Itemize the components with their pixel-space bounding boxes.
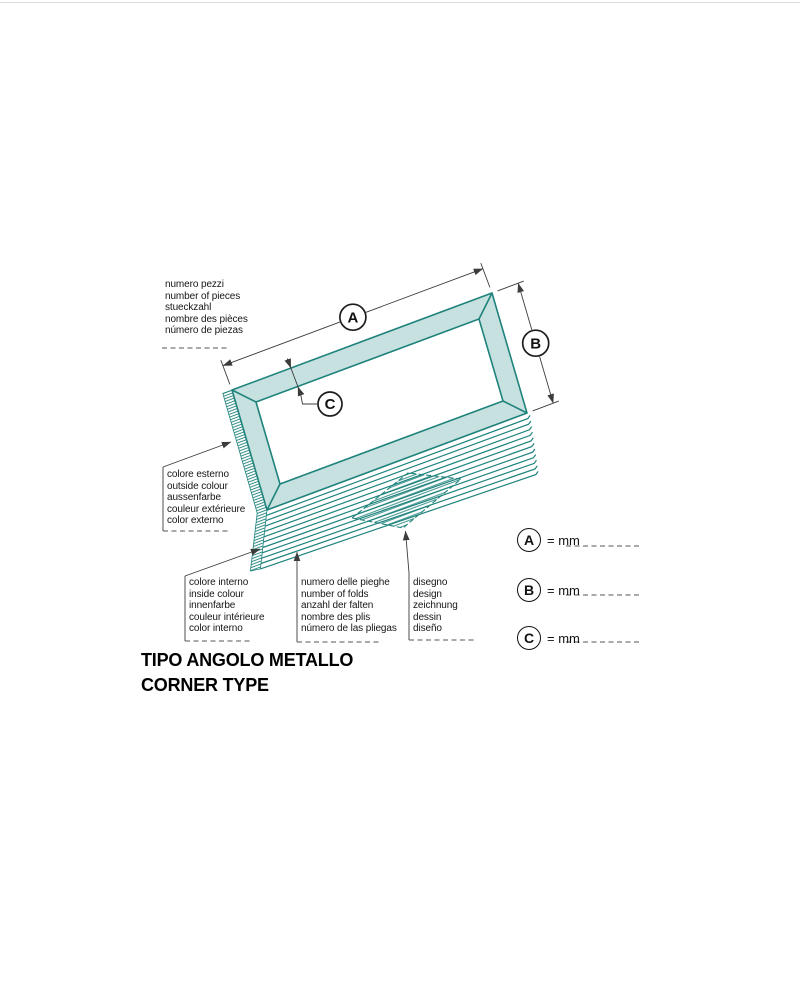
page: A B C xyxy=(0,0,800,1000)
dim-letter-c: C xyxy=(325,396,336,413)
dim-row-c-unit: = mm xyxy=(547,631,580,646)
dim-letter-a: A xyxy=(347,309,358,326)
label-number-of-pieces: numero pezzi number of pieces stueckzahl… xyxy=(165,279,248,337)
label-design: disegno design zeichnung dessin diseño xyxy=(413,577,458,635)
corner-frame xyxy=(232,293,527,510)
page-title: TIPO ANGOLO METALLO CORNER TYPE xyxy=(141,648,353,698)
dim-row-a-circle: A xyxy=(517,528,541,552)
leader-design xyxy=(406,531,410,640)
dim-row-b: B = mm xyxy=(517,577,580,603)
leader-inside-colour xyxy=(185,549,260,576)
label-number-of-folds: numero delle pieghe number of folds anza… xyxy=(301,577,397,635)
dim-letter-b: B xyxy=(530,335,541,352)
label-outside-colour: colore esterno outside colour aussenfarb… xyxy=(167,469,245,527)
leader-outside-colour xyxy=(163,442,231,467)
corner-diagram: A B C xyxy=(0,0,800,1000)
dim-row-a-unit: = mm xyxy=(547,533,580,548)
dim-row-b-unit: = mm xyxy=(547,583,580,598)
dim-row-a: A = mm xyxy=(517,527,580,553)
dim-row-c: C = mm xyxy=(517,625,580,651)
dim-row-c-circle: C xyxy=(517,626,541,650)
label-inside-colour: colore interno inside colour innenfarbe … xyxy=(189,577,264,635)
page-title-line2: CORNER TYPE xyxy=(141,673,353,698)
dim-row-b-circle: B xyxy=(517,578,541,602)
page-title-line1: TIPO ANGOLO METALLO xyxy=(141,648,353,673)
